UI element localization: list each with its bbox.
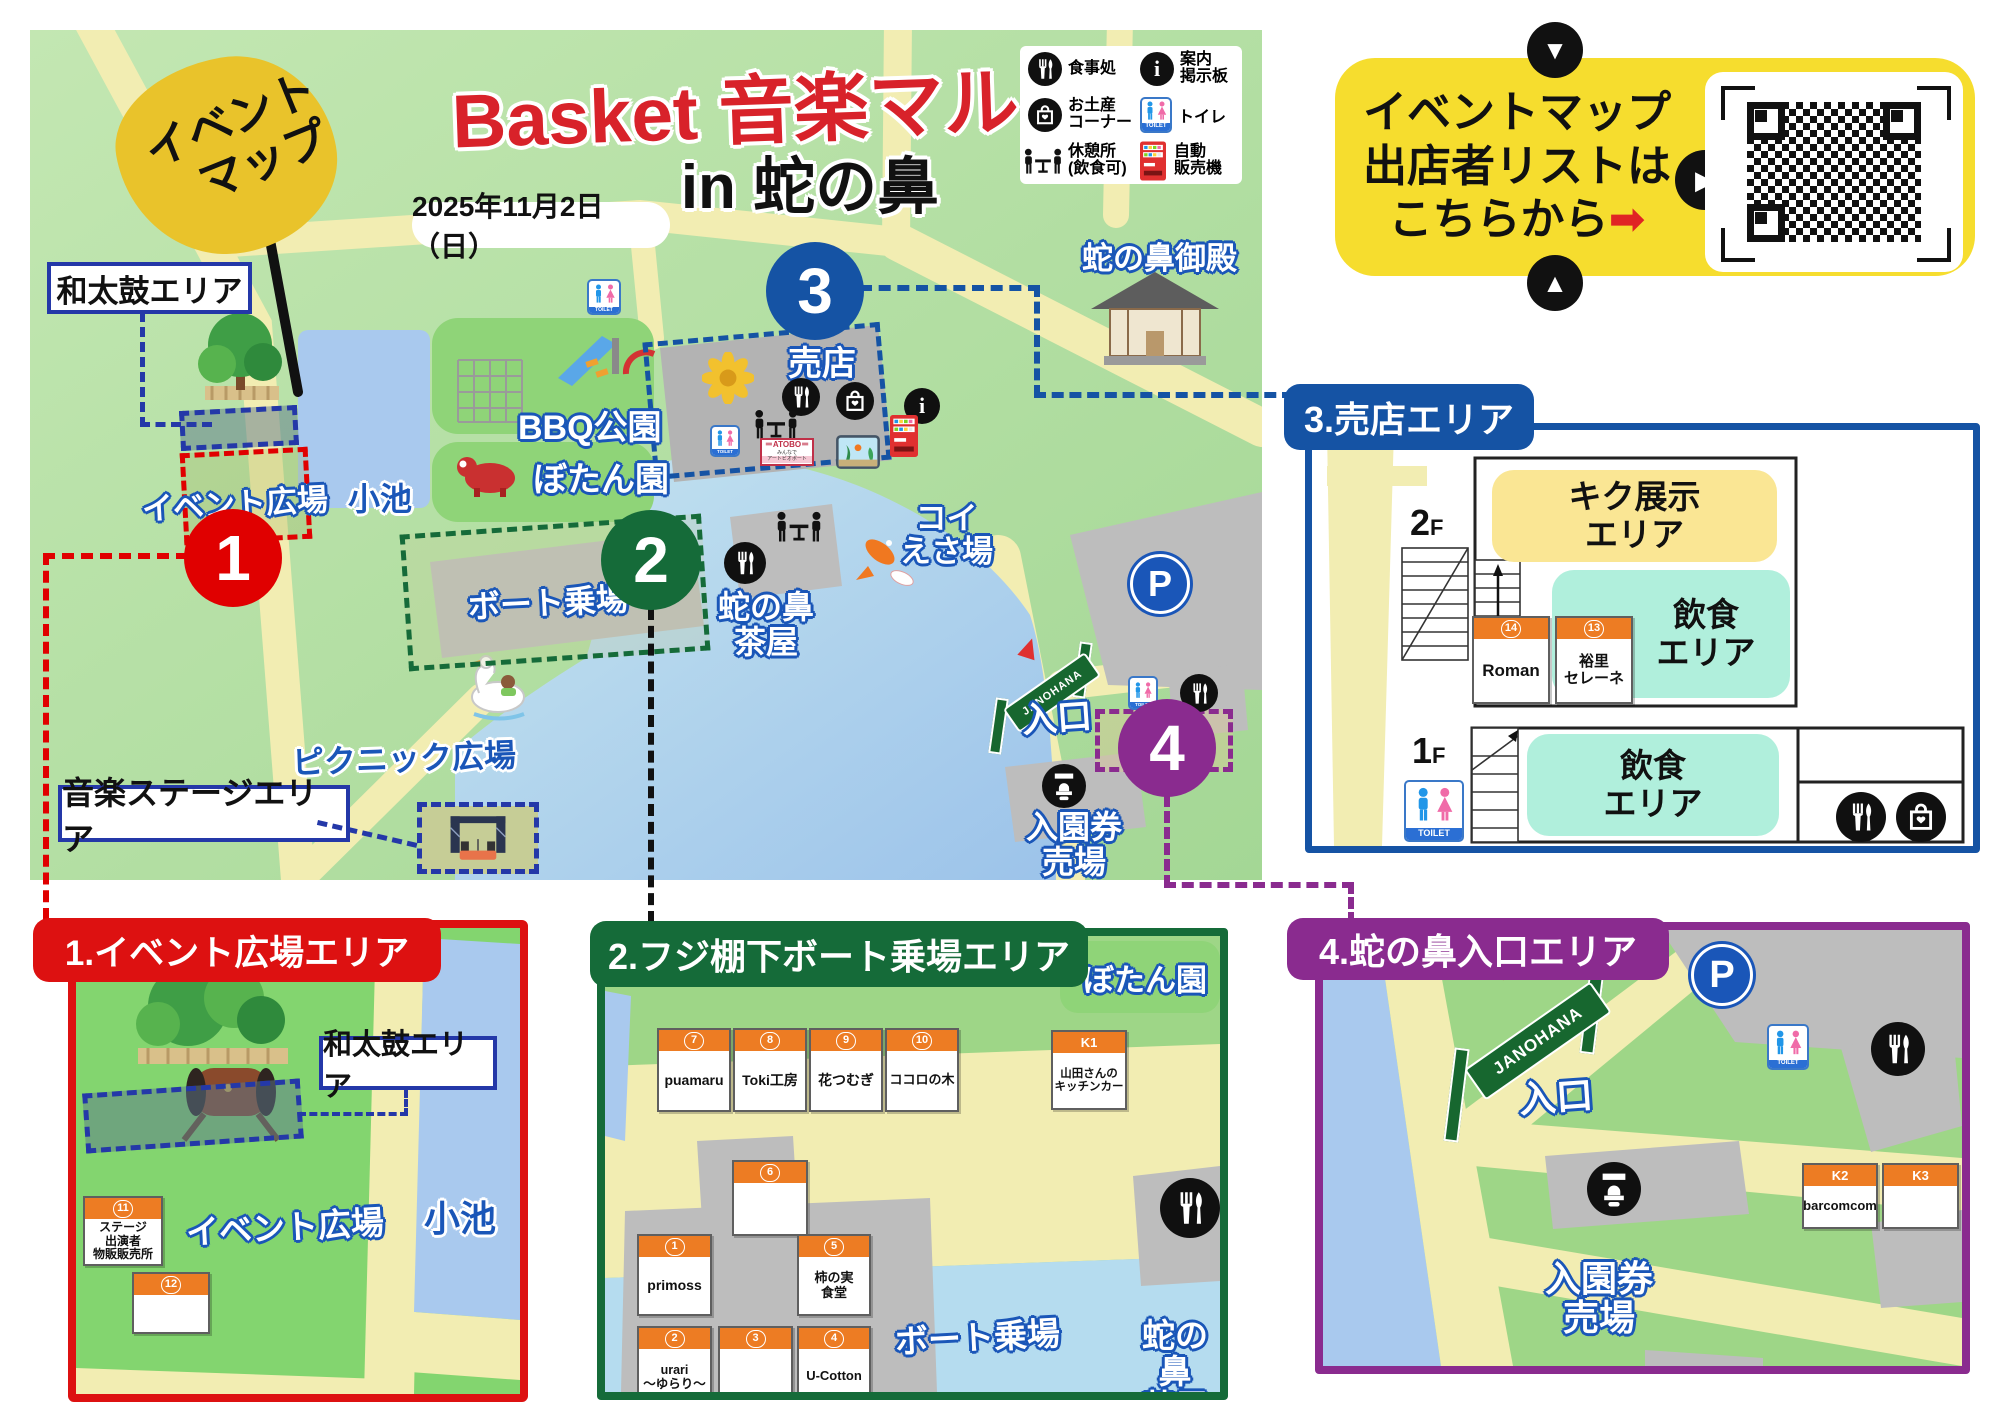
booth-4: 4 U-Cotton bbox=[797, 1326, 871, 1400]
parking-icon: P bbox=[1691, 944, 1753, 1006]
floor-2f-label: 2F bbox=[1410, 502, 1443, 544]
area-marker-2: 2 bbox=[601, 510, 701, 610]
stage-dashed-zone bbox=[417, 802, 539, 874]
entrance-label: 入口 bbox=[1518, 1075, 1595, 1120]
booth-7: 7 puamaru bbox=[657, 1028, 731, 1112]
rest-area-icon bbox=[752, 408, 800, 440]
entrance-label: 入口 bbox=[1021, 698, 1093, 741]
booth-14: 14 Roman bbox=[1472, 616, 1550, 704]
aquarium-icon bbox=[836, 434, 880, 470]
toilet-icon: TOILET bbox=[587, 279, 621, 315]
booth-k3: K3 bbox=[1882, 1163, 1959, 1229]
meal-icon bbox=[1160, 1178, 1220, 1238]
rest-area-icon bbox=[1022, 147, 1064, 175]
rest-area-icon bbox=[774, 510, 824, 543]
booth-8: 8 Toki工房 bbox=[733, 1028, 807, 1112]
koi-feeding-label: コイ えさ場 bbox=[900, 502, 993, 569]
booth-1: 1 primoss bbox=[637, 1234, 712, 1316]
ticket-booth-icon bbox=[1587, 1162, 1641, 1216]
area-marker-1: 1 bbox=[184, 509, 282, 607]
connector-wadaiko bbox=[140, 422, 212, 427]
panel-2-header: 2.フジ棚下ボート乗場エリア bbox=[590, 921, 1088, 987]
booth-11: 11 ステージ 出演者 物販販売所 bbox=[83, 1196, 163, 1266]
event-map-page: イベント マップ Basket 音楽マルシェ in 蛇の鼻 2025年11月2日… bbox=[0, 0, 2000, 1414]
legend: 食事処 i 案内 掲示板 お土産 コーナー TOILET トイレ 休憩所 (飲食… bbox=[1020, 46, 1242, 184]
dining-zone-1f: 飲食 エリア bbox=[1527, 734, 1779, 836]
ticket-office-label: 入園券 売場 bbox=[1545, 1260, 1653, 1338]
arrow-down-icon: ▼ bbox=[1527, 22, 1583, 78]
ticket-office-label: 入園券 売場 bbox=[1026, 810, 1122, 879]
meal-icon bbox=[1836, 792, 1886, 842]
connector-3 bbox=[1034, 285, 1040, 397]
souvenir-icon bbox=[836, 382, 874, 420]
booth-3: 3 bbox=[718, 1326, 793, 1400]
connector-wadaiko-panel bbox=[298, 1112, 408, 1116]
booth-k2: K2 barcomcom bbox=[1802, 1163, 1878, 1229]
souvenir-icon bbox=[1896, 792, 1946, 842]
booth-2: 2 urari 〜ゆらり〜 bbox=[637, 1326, 712, 1400]
legend-label: 案内 掲示板 bbox=[1180, 52, 1228, 86]
panel-4: JANOHANA 入口 P TOILET K2 barcomcom K3 入園券… bbox=[1315, 922, 1970, 1374]
stage-icon bbox=[443, 814, 513, 862]
panel-2: ぼたん園 7 puamaru 8 Toki工房 9 花つむぎ 10 ココロの木 … bbox=[597, 928, 1228, 1400]
connector-1 bbox=[43, 553, 49, 920]
qr-caption: イベントマップ 出店者リストは こちらから➡ bbox=[1352, 86, 1682, 247]
wadaiko-area-label: 和太鼓エリア bbox=[47, 262, 252, 314]
legend-label: お土産 コーナー bbox=[1068, 98, 1132, 132]
connector-wadaiko bbox=[140, 312, 145, 427]
main-map: イベント マップ Basket 音楽マルシェ in 蛇の鼻 2025年11月2日… bbox=[30, 30, 1262, 880]
ticket-booth-icon bbox=[1042, 764, 1086, 808]
area-marker-4: 4 bbox=[1118, 699, 1216, 797]
toilet-icon: TOILET bbox=[710, 425, 740, 457]
connector-2 bbox=[648, 608, 654, 923]
floor-1f-label: 1F bbox=[1412, 730, 1445, 772]
goten-label: 蛇の鼻御殿 bbox=[1082, 242, 1237, 275]
panel-1-header: 1.イベント広場エリア bbox=[33, 918, 441, 982]
legend-label: 休憩所 (飲食可) bbox=[1068, 144, 1127, 178]
chaya-label: 蛇の鼻 茶屋 bbox=[718, 590, 814, 659]
booth-5: 5 柿の実 食堂 bbox=[797, 1234, 871, 1316]
meal-icon bbox=[1871, 1022, 1925, 1076]
koike-label: 小池 bbox=[348, 482, 412, 517]
toilet-icon: TOILET bbox=[1404, 780, 1464, 842]
toilet-icon: TOILET bbox=[1140, 97, 1172, 133]
legend-label: 自動 販売機 bbox=[1174, 144, 1222, 178]
panel-4-header: 4.蛇の鼻入口エリア bbox=[1287, 918, 1669, 980]
booth-6: 6 bbox=[732, 1160, 808, 1236]
panel-3-header: 3.売店エリア bbox=[1284, 384, 1534, 450]
wadaiko-area-label: 和太鼓エリア bbox=[319, 1036, 497, 1090]
chaya-label: 蛇の鼻 茶屋 bbox=[1130, 1318, 1220, 1400]
vending-machine-icon bbox=[890, 414, 918, 458]
event-date: 2025年11月2日（日） bbox=[412, 202, 670, 248]
parking-icon: P bbox=[1130, 554, 1190, 614]
bbq-park-label: BBQ公園 bbox=[518, 410, 662, 447]
red-arrow-icon: ➡ bbox=[1609, 195, 1646, 244]
booth-k1: K1 山田さんの キッチンカー bbox=[1051, 1030, 1127, 1110]
panel-3: 2F キク展示 エリア 飲食 エリア 14 Roman 13 裕里 セレーネ 1… bbox=[1305, 423, 1980, 853]
connector-1 bbox=[43, 553, 188, 559]
toilet-icon: TOILET bbox=[1767, 1024, 1809, 1070]
chrysanthemum-icon bbox=[702, 352, 754, 404]
connector-3 bbox=[1034, 392, 1294, 398]
panel-1: 和太鼓エリア 11 ステージ 出演者 物販販売所 イベント広場 小池 12 bbox=[68, 920, 528, 1402]
music-stage-label: 音楽ステージエリア bbox=[58, 785, 350, 842]
info-board-icon: i bbox=[1140, 52, 1174, 86]
botan-garden-label: ぼたん園 bbox=[533, 462, 669, 499]
wadaiko-dashed-zone bbox=[179, 405, 299, 451]
qr-code[interactable] bbox=[1705, 72, 1963, 272]
connector-4 bbox=[1164, 882, 1354, 888]
booth-12: 12 bbox=[132, 1272, 210, 1334]
legend-label: トイレ bbox=[1178, 103, 1226, 127]
meal-icon bbox=[1028, 52, 1062, 86]
event-date-text: 2025年11月2日（日） bbox=[412, 185, 670, 265]
connector-3 bbox=[860, 285, 1040, 291]
atobo-sign: ＝ATOBO＝ みんなで アートビオポート bbox=[760, 438, 814, 466]
connector-4 bbox=[1164, 795, 1170, 887]
booth-10: 10 ココロの木 bbox=[885, 1028, 959, 1112]
area-marker-3: 3 bbox=[766, 242, 864, 340]
meal-icon bbox=[724, 542, 766, 584]
legend-label: 食事処 bbox=[1068, 61, 1116, 78]
booth-9: 9 花つむぎ bbox=[809, 1028, 883, 1112]
koike-label: 小池 bbox=[424, 1200, 496, 1239]
souvenir-icon bbox=[1028, 98, 1062, 132]
botan-garden-label: ぼたん園 bbox=[1083, 964, 1207, 997]
vending-machine-icon bbox=[1140, 141, 1166, 181]
arrow-up-icon: ▲ bbox=[1527, 255, 1583, 311]
booth-13: 13 裕里 セレーネ bbox=[1555, 616, 1633, 704]
kiku-exhibit-zone: キク展示 エリア bbox=[1492, 470, 1777, 562]
